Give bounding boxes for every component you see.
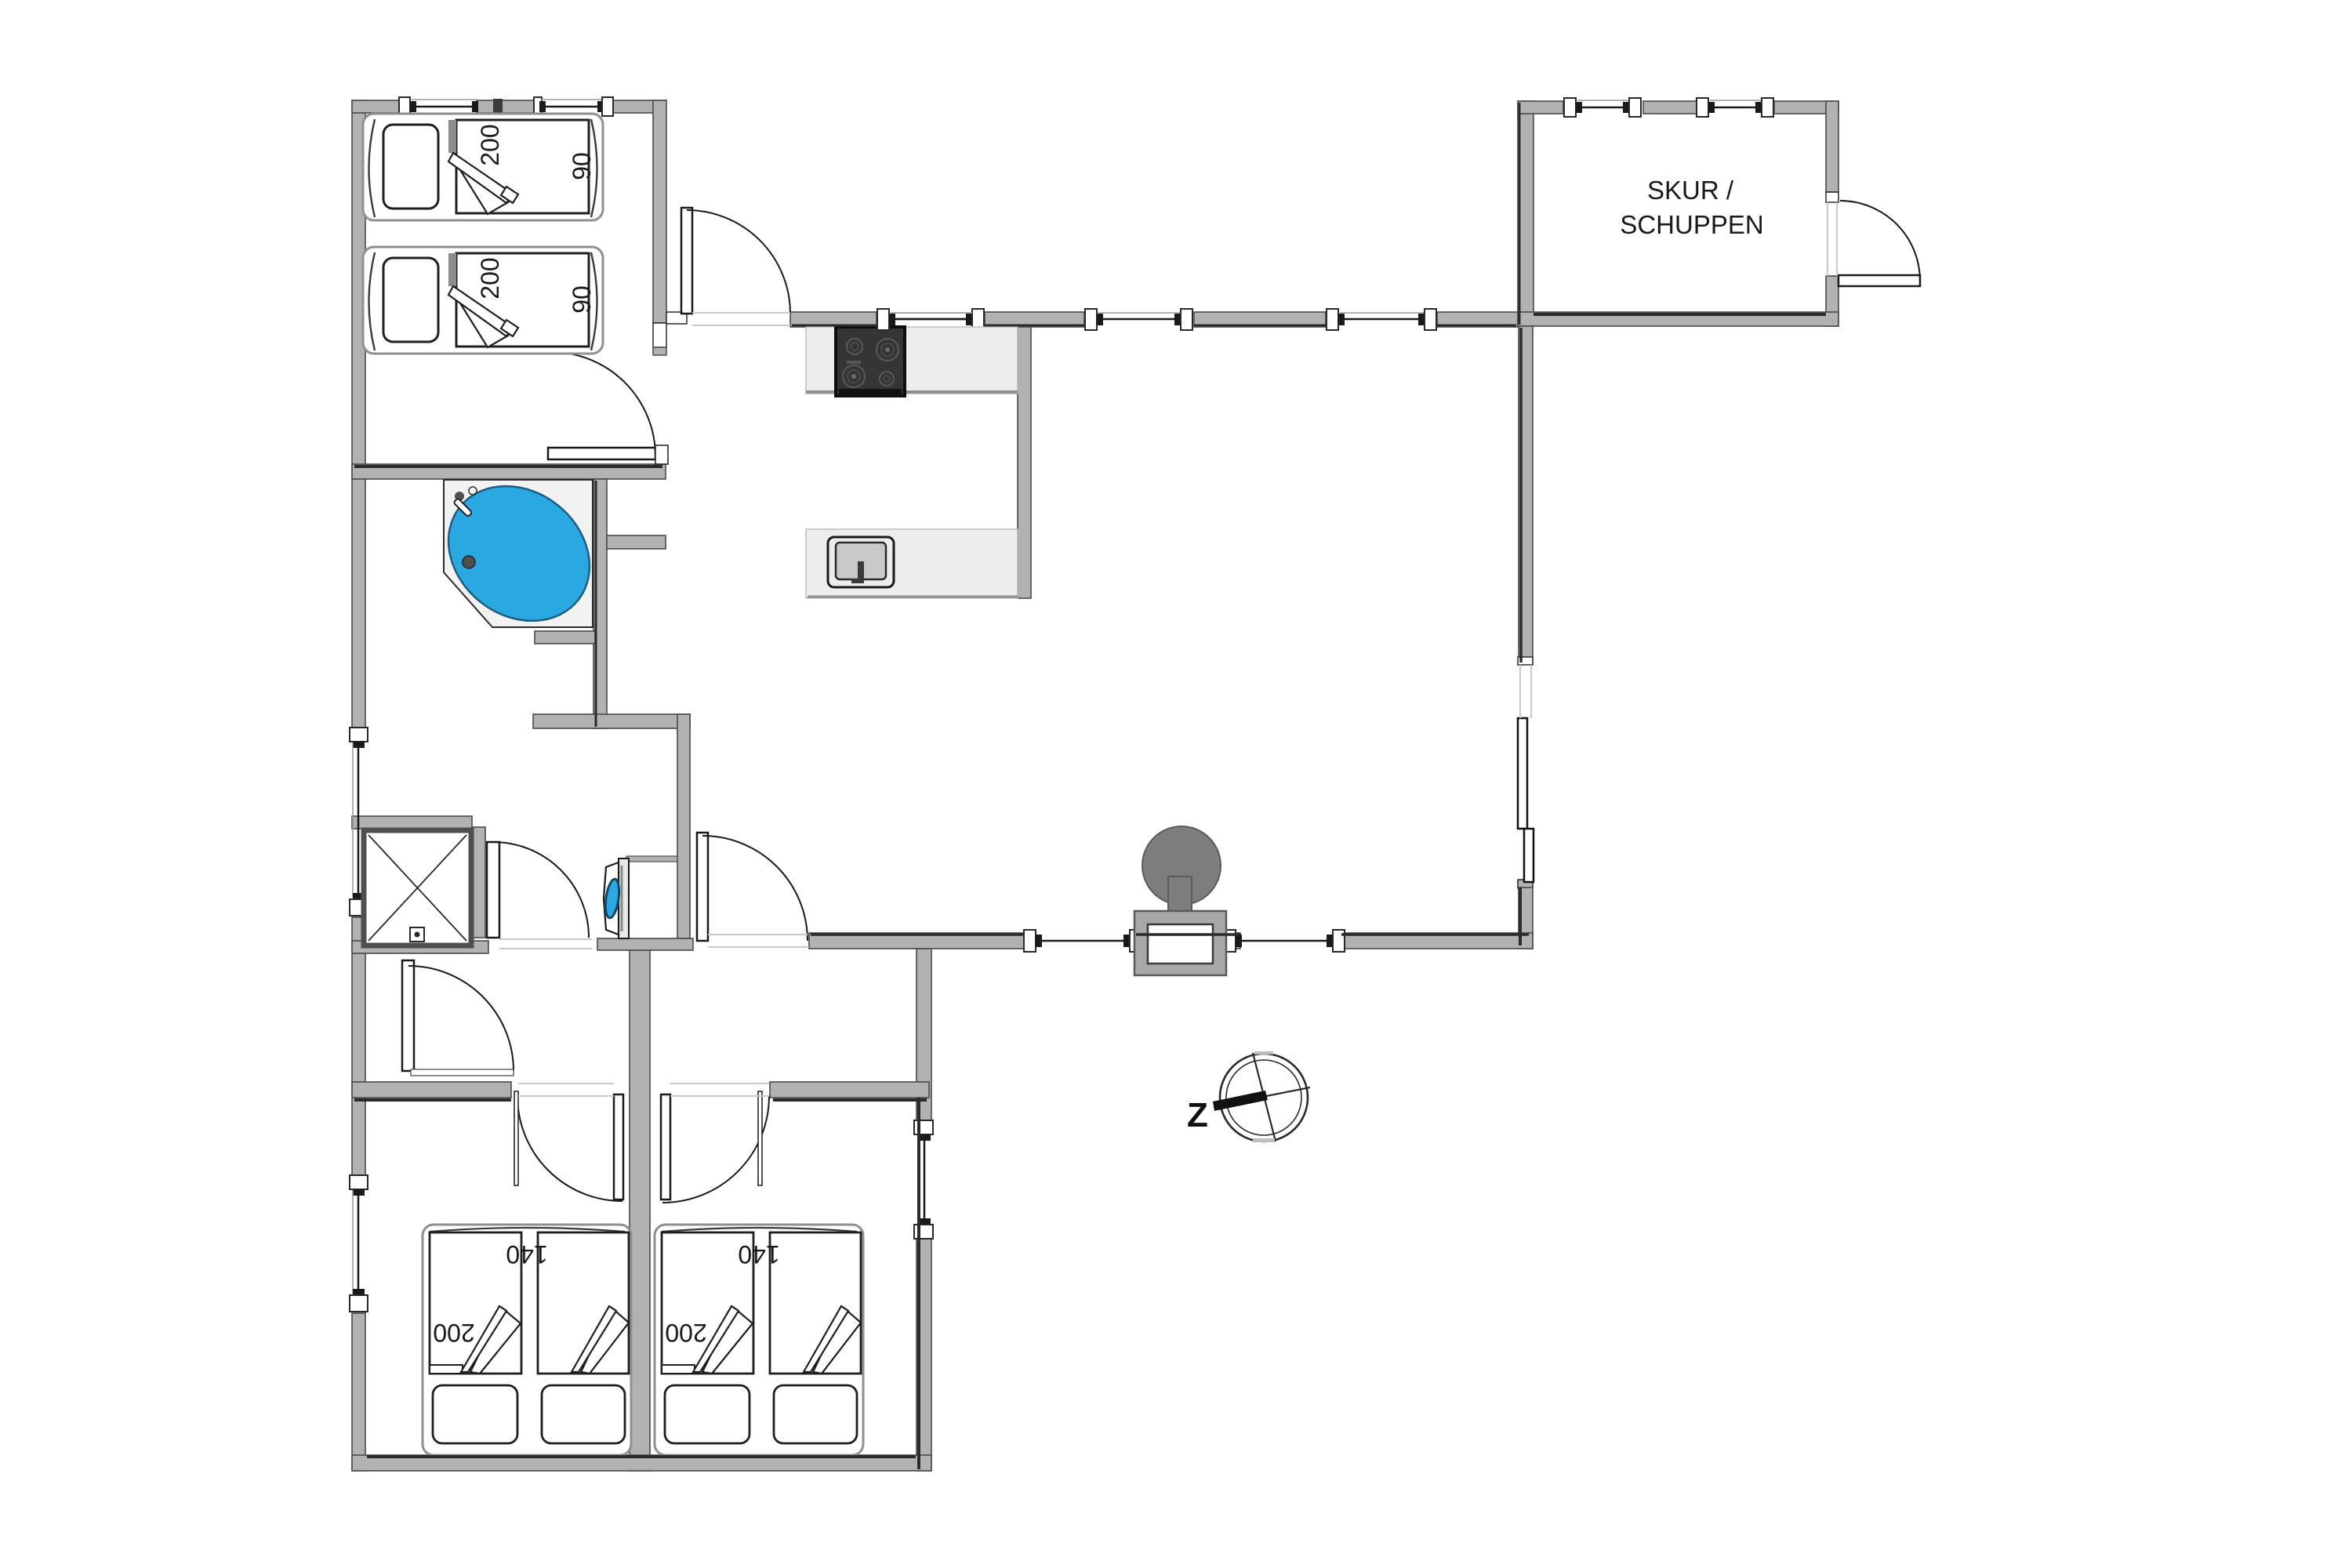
svg-text:SCHUPPEN: SCHUPPEN bbox=[1620, 210, 1763, 239]
svg-text:SKUR /: SKUR / bbox=[1647, 176, 1734, 205]
svg-text:Z: Z bbox=[1187, 1096, 1208, 1134]
